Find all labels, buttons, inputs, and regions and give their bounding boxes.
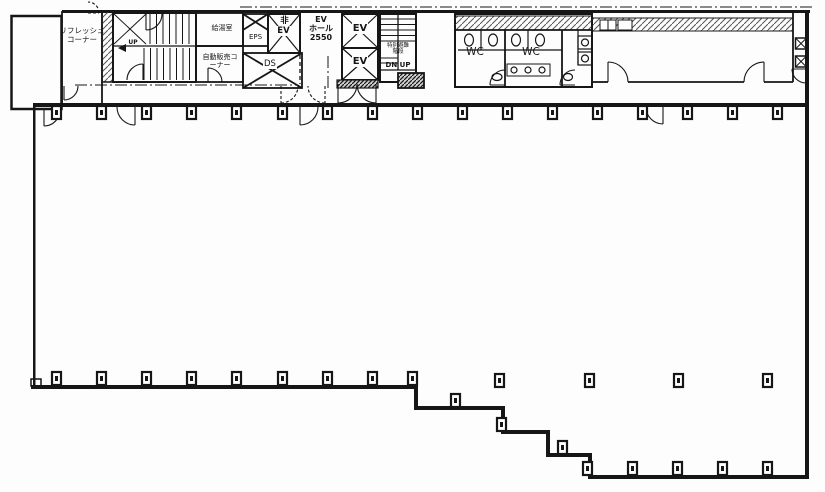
window-frame (618, 20, 632, 30)
corner-notch (31, 379, 41, 386)
floor-plan-drawing (0, 0, 825, 492)
kitchenette-room (196, 13, 243, 82)
elevator-hall (300, 48, 342, 84)
wc-area (455, 14, 592, 87)
emergency-elevator-shaft (268, 14, 300, 53)
stair-left (113, 13, 196, 82)
elevator-1-shaft (342, 14, 378, 48)
ds-shaft (243, 53, 302, 88)
eps-shaft (243, 14, 268, 46)
left-block (12, 16, 62, 109)
refresh-corner-room (62, 12, 113, 104)
top-right-room (592, 18, 793, 82)
elevator-2-shaft (342, 48, 378, 80)
stair-right (380, 14, 424, 88)
up-arrow-icon (118, 44, 126, 52)
right-service-strip (793, 13, 807, 82)
columns (52, 106, 782, 475)
floor-plan: リフレッシュ コーナー UP 給湯室 自動販売コ ーナー EPS 非 EV EV… (0, 0, 825, 492)
